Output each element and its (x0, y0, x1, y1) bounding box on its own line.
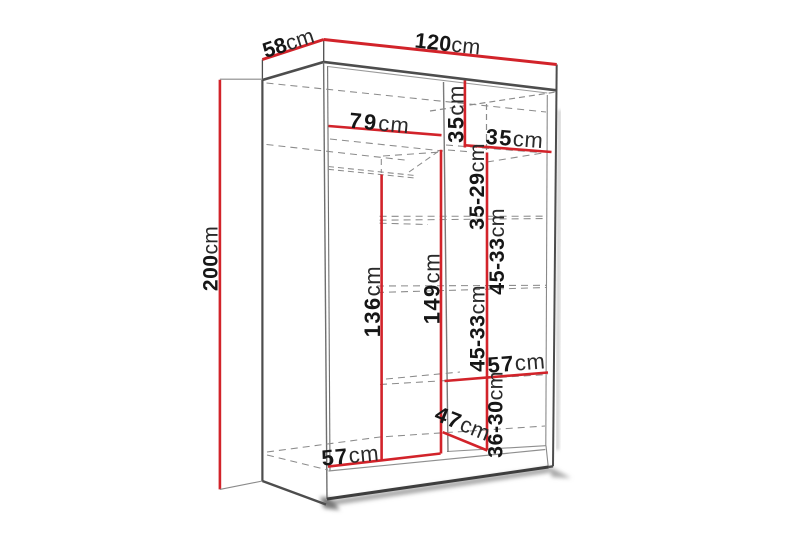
svg-text:36-30cm: 36-30cm (484, 371, 508, 458)
svg-text:136cm: 136cm (360, 266, 385, 337)
svg-text:200cm: 200cm (200, 226, 223, 291)
svg-text:35cm: 35cm (485, 124, 545, 153)
svg-text:45-33cm: 45-33cm (485, 208, 509, 295)
svg-text:149cm: 149cm (420, 253, 445, 324)
svg-text:35cm: 35cm (444, 85, 469, 143)
svg-text:45-33cm: 45-33cm (466, 285, 490, 372)
